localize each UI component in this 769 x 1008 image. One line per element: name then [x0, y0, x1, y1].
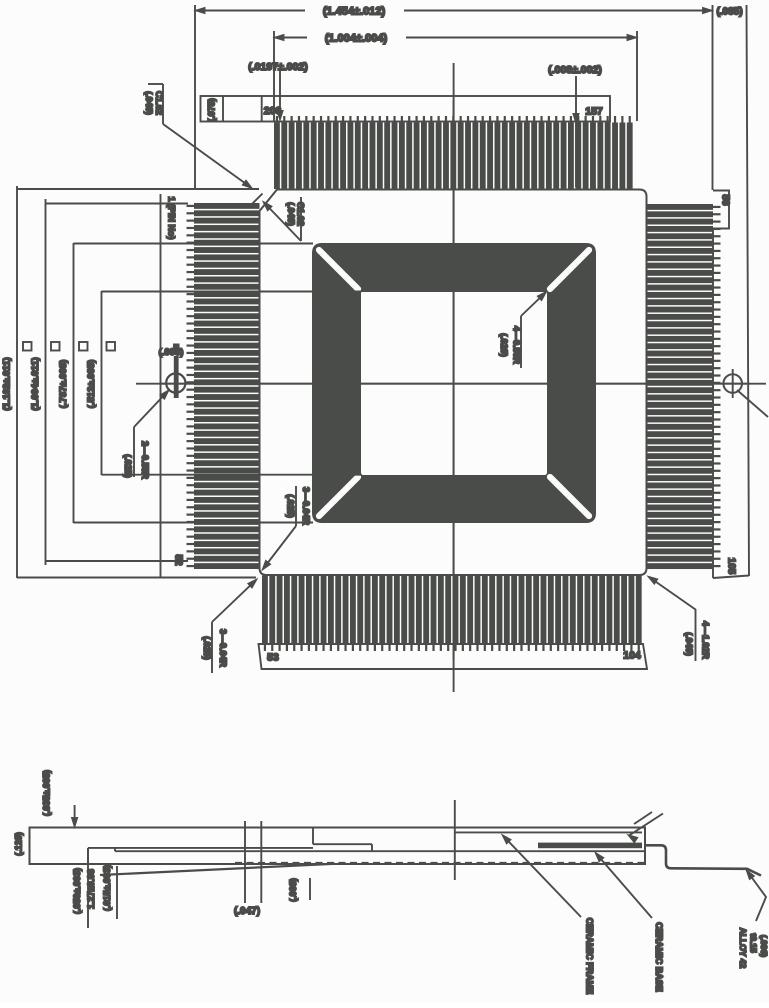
svg-text:(.787±.008): (.787±.008)	[58, 360, 69, 409]
svg-text:(1.004±.004): (1.004±.004)	[325, 33, 388, 45]
svg-text:4—0.50R: 4—0.50R	[512, 326, 522, 365]
svg-text:(.015±.003): (.015±.003)	[102, 865, 112, 911]
svg-text:(.047): (.047)	[234, 906, 260, 917]
svg-text:(.025): (.025)	[123, 454, 133, 478]
svg-text:(.006): (.006)	[759, 935, 769, 957]
svg-text:3—0.64R: 3—0.64R	[301, 487, 311, 526]
svg-text:(.008): (.008)	[159, 347, 184, 358]
svg-text:(.025): (.025)	[286, 494, 296, 518]
svg-text:3—0.64R: 3—0.64R	[218, 629, 228, 668]
svg-text:(.040): (.040)	[286, 202, 296, 226]
svg-text:157: 157	[585, 106, 603, 118]
svg-text:(1.004±.011): (1.004±.011)	[30, 357, 41, 410]
svg-text:t0.15: t0.15	[749, 933, 759, 953]
svg-text:(1.454±.012): (1.454±.012)	[323, 6, 386, 18]
svg-text:2—0.55R: 2—0.55R	[140, 441, 150, 480]
svg-text:105: 105	[726, 558, 737, 575]
svg-text:4—1.02R: 4—1.02R	[701, 621, 711, 660]
svg-text:(.035±.005): (.035±.005)	[42, 770, 52, 816]
svg-text:(1.102±.011): (1.102±.011)	[2, 357, 13, 410]
svg-text:(.075): (.075)	[207, 98, 217, 122]
svg-text:CERAMIC FRAME: CERAMIC FRAME	[585, 918, 595, 995]
svg-text:(.008): (.008)	[288, 878, 298, 902]
svg-text:CERAMIC BASE: CERAMIC BASE	[654, 922, 664, 992]
svg-text:(.040): (.040)	[144, 91, 154, 115]
svg-text:(.512±.005): (.512±.005)	[86, 360, 97, 409]
svg-text:(.025): (.025)	[202, 636, 212, 660]
svg-text:(.020): (.020)	[499, 333, 509, 357]
svg-text:(.050±.003): (.050±.003)	[72, 868, 82, 914]
svg-text:(.008±.002): (.008±.002)	[548, 64, 602, 76]
svg-text:(.120): (.120)	[14, 832, 24, 856]
svg-text:104: 104	[623, 650, 641, 662]
svg-text:(.0197±.002): (.0197±.002)	[248, 61, 307, 73]
svg-text:ALLOY 42: ALLOY 42	[738, 928, 748, 969]
svg-text:(.040): (.040)	[684, 632, 694, 656]
svg-text:53: 53	[267, 652, 279, 664]
svg-text:(.085): (.085)	[716, 7, 742, 18]
svg-text:56: 56	[720, 194, 731, 206]
